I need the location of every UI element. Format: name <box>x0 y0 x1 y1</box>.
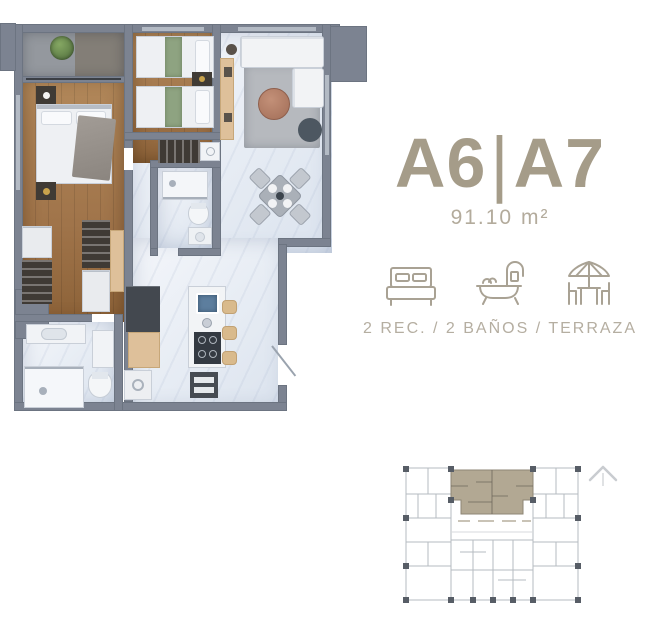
wall-masterbath-right <box>114 314 123 411</box>
vanity-bath2 <box>188 227 212 245</box>
plate <box>283 199 292 208</box>
coffee-table <box>258 88 290 120</box>
terrace-icon <box>561 258 617 310</box>
toilet-tank <box>92 372 108 379</box>
keyplan <box>398 452 648 630</box>
bathtub-icon <box>471 258 529 310</box>
burner <box>198 350 206 358</box>
feature-icons <box>360 256 640 310</box>
bath-cabinet <box>92 330 114 368</box>
bed-runner <box>165 87 182 127</box>
nightstand-master-top <box>36 86 56 104</box>
kitchen-sink <box>196 293 219 314</box>
door-master-suite <box>124 148 133 170</box>
dresser-left <box>22 226 52 258</box>
toilet-master <box>88 372 112 398</box>
laundry-unit <box>200 142 220 161</box>
wall-bath2-bottom-b <box>178 248 221 256</box>
sofa-chaise <box>292 68 324 108</box>
terrace-slider-door <box>26 78 121 80</box>
wall-master-bed2-divider <box>124 24 133 141</box>
wall-right-lower-a <box>278 244 287 345</box>
shower-glass <box>25 367 83 369</box>
drawer-front <box>194 387 214 393</box>
closet-bench <box>110 230 124 292</box>
ottoman <box>298 118 322 142</box>
shower-glass <box>163 197 207 199</box>
bed-runner <box>165 37 182 77</box>
wall-bath2-left <box>150 160 158 256</box>
throw-blanket <box>72 115 116 181</box>
unit-title-divider: | <box>486 126 513 200</box>
fridge-cabinet <box>126 286 160 332</box>
toilet-tank <box>191 203 206 209</box>
centerpiece <box>276 192 284 200</box>
sink-basin <box>195 232 205 242</box>
window-master-left <box>16 95 20 190</box>
window-bedroom2 <box>142 27 204 31</box>
pillow <box>41 111 72 125</box>
closet-bedroom2 <box>158 140 200 163</box>
tv-console <box>220 58 234 140</box>
bed-icon <box>383 264 439 310</box>
bed-twin-b <box>136 86 214 128</box>
plant <box>50 36 74 60</box>
lamp <box>43 92 50 99</box>
dresser-right <box>82 270 110 312</box>
washer <box>124 370 152 400</box>
window-living <box>238 27 316 31</box>
door-masterbath <box>92 314 114 322</box>
wall-bath2-bottom-a <box>150 248 158 256</box>
unit-title-left: A6 <box>395 124 486 202</box>
dining-set <box>250 166 310 226</box>
closet-left <box>22 260 52 304</box>
faucet <box>202 318 212 328</box>
pillow <box>195 40 210 74</box>
plate <box>268 184 277 193</box>
shower-drain <box>169 180 176 187</box>
shower-bath2 <box>162 171 208 200</box>
pantry-cabinet <box>128 332 160 368</box>
wall-bump-top-left <box>0 23 16 71</box>
kitchen-lower-cabinet <box>190 372 218 398</box>
unit-title: A6|A7 <box>360 128 640 198</box>
burner <box>198 336 206 344</box>
lamp-gold <box>199 76 205 82</box>
window-living-right <box>325 75 329 155</box>
kitchen-island <box>188 286 226 368</box>
sofa-main <box>240 36 324 68</box>
sink-basin <box>41 328 67 340</box>
stove <box>194 332 221 364</box>
bar-stool <box>222 326 237 340</box>
terrace-floor <box>22 32 124 78</box>
shower-master <box>24 366 84 408</box>
burner <box>209 350 217 358</box>
side-stool <box>226 44 237 55</box>
drawer-front <box>194 377 214 383</box>
burner <box>209 336 217 344</box>
bar-stool <box>222 351 237 365</box>
unit-title-right: A7 <box>514 124 605 202</box>
nightstand-bed2 <box>192 72 212 86</box>
bar-stool <box>222 300 237 314</box>
plate <box>268 199 277 208</box>
shower-drain <box>39 387 47 395</box>
brochure-page: { "info": { "unit_left": "A6", "divider"… <box>0 0 648 630</box>
washer-door <box>132 379 144 391</box>
console-item <box>224 67 232 77</box>
lamp-gold <box>43 188 50 195</box>
unit-info-panel: A6|A7 91.10 m² <box>360 128 640 338</box>
washer-door <box>206 147 215 156</box>
unit-area: 91.10 m² <box>360 206 640 230</box>
console-item <box>224 113 232 122</box>
features-caption: 2 REC. / 2 BAÑOS / TERRAZA <box>360 320 640 338</box>
vanity-master <box>26 324 86 344</box>
floorplan-render <box>10 15 362 417</box>
closet-right <box>82 220 110 268</box>
pillow <box>195 90 210 124</box>
bed-master <box>36 104 112 184</box>
toilet-bath2 <box>188 203 209 225</box>
wall-bed2-bottom <box>124 132 221 140</box>
nightstand-master-bottom <box>36 182 56 200</box>
headboard <box>37 105 111 109</box>
north-arrow-icon <box>590 467 616 486</box>
plate <box>283 184 292 193</box>
